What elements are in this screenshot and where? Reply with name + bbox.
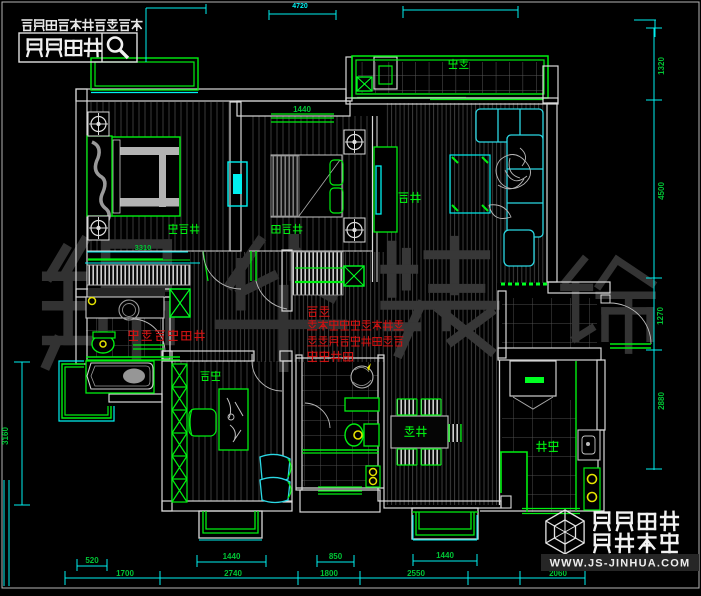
svg-text:4500: 4500 bbox=[657, 182, 666, 200]
svg-text:3310: 3310 bbox=[135, 243, 152, 252]
svg-text:1700: 1700 bbox=[116, 569, 134, 578]
svg-text:1440: 1440 bbox=[436, 551, 454, 560]
svg-text:850: 850 bbox=[329, 552, 343, 561]
svg-text:2550: 2550 bbox=[407, 569, 425, 578]
svg-text:1270: 1270 bbox=[656, 307, 665, 325]
svg-text:520: 520 bbox=[85, 556, 99, 565]
svg-text:1800: 1800 bbox=[320, 569, 338, 578]
svg-text:1440: 1440 bbox=[293, 105, 311, 114]
svg-text:2880: 2880 bbox=[657, 392, 666, 410]
svg-text:3160: 3160 bbox=[1, 427, 10, 445]
svg-text:WWW.JS-JINHUA.COM: WWW.JS-JINHUA.COM bbox=[550, 558, 691, 570]
svg-text:4720: 4720 bbox=[292, 3, 308, 10]
svg-text:2740: 2740 bbox=[224, 569, 242, 578]
svg-text:1320: 1320 bbox=[657, 57, 666, 75]
svg-text:1440: 1440 bbox=[223, 552, 241, 561]
